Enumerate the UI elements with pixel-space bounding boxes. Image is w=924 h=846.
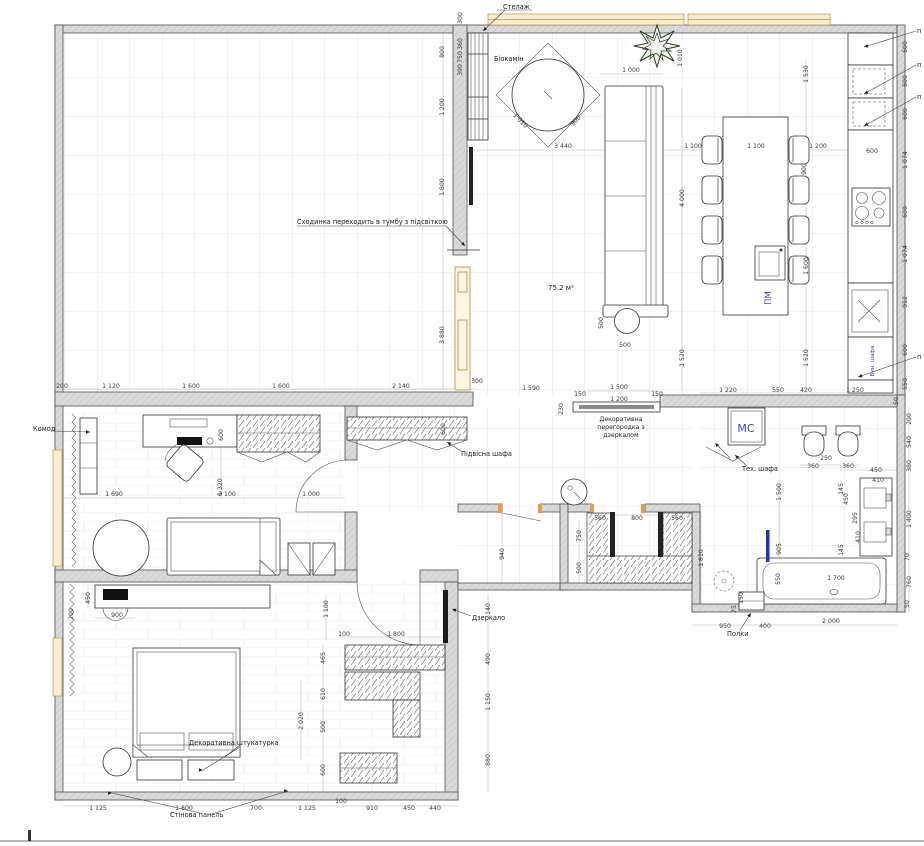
dim-label: 70	[904, 553, 911, 561]
dim-label: 100	[338, 631, 350, 638]
dim-label: 250	[820, 455, 832, 462]
label-hanging-wardrobe: Підвісна шафа	[461, 450, 512, 458]
dim-label: 1 690	[105, 491, 123, 498]
dim-label: 360	[842, 463, 854, 470]
dim-label: 910	[366, 805, 378, 812]
wall-tv	[469, 147, 473, 205]
label-dishwasher: ПМ	[764, 291, 774, 305]
dim-label: 410	[872, 477, 884, 484]
label-partition-1: Декоративна	[600, 416, 643, 423]
dim-label: 1 800	[439, 178, 446, 196]
dim-label: 600	[866, 148, 878, 155]
dim-label: 600	[902, 75, 909, 87]
dim-label: 1 500	[776, 483, 783, 501]
dim-label: 560	[594, 515, 606, 522]
dim-label: 600	[218, 429, 225, 441]
dim-label: 760	[906, 576, 913, 588]
dim-label: 900	[111, 612, 123, 619]
dim-label: 500	[320, 721, 327, 733]
label-dresser: Комод	[33, 425, 56, 433]
dim-label: 1 220	[719, 387, 737, 394]
dim-label: 600	[320, 764, 327, 776]
dim-label: 940	[499, 548, 506, 560]
dim-label: 1 150	[485, 693, 492, 711]
dim-label: 200	[68, 608, 75, 620]
dim-label: 1 500	[610, 384, 628, 391]
dim-label: 1 100	[323, 600, 330, 618]
label-cut-right: п	[917, 27, 921, 35]
dim-label: 3 440	[554, 143, 572, 150]
dim-label: 1 125	[298, 805, 316, 812]
daybed	[167, 518, 280, 575]
label-cut-right: п	[917, 353, 921, 361]
label-step-note: Сходинка переходить в тумбу з підсвіткою	[297, 218, 448, 226]
dim-label: 450	[85, 592, 92, 604]
living-room-floor	[63, 33, 453, 392]
dim-label: 1 700	[827, 575, 845, 582]
sofa	[603, 86, 668, 317]
corridor-floor	[458, 512, 560, 583]
round-rug	[93, 520, 149, 576]
dim-label: 1 520	[803, 349, 810, 367]
dim-label: 540	[906, 436, 913, 448]
dim-label: 1 320	[217, 478, 224, 496]
toilet	[802, 426, 826, 456]
dim-label: 600	[902, 108, 909, 120]
sheet-corner-mark	[28, 830, 31, 841]
dim-label: 360	[457, 38, 464, 50]
dim-label: 150	[738, 592, 745, 604]
pendant-light	[561, 479, 587, 505]
dim-label: 1 100	[747, 143, 765, 150]
floor-plan-canvas: Стелаж Біокамін Сходинка переходить в ту…	[0, 0, 924, 846]
dim-label: 440	[429, 805, 441, 812]
dim-label: 295	[852, 512, 859, 524]
dim-label: 200	[906, 413, 913, 425]
label-tech-cabinet: Тех. шафа	[741, 465, 778, 473]
dim-label: 410	[855, 531, 862, 543]
dim-label: 300	[471, 378, 483, 385]
dim-label: 465	[320, 652, 327, 664]
partition-mirror	[573, 402, 660, 412]
dim-label: 550	[775, 573, 782, 585]
dim-label: 550	[902, 378, 909, 390]
dim-label: 1 590	[522, 385, 540, 392]
dim-label: 1 100	[684, 143, 702, 150]
window	[53, 638, 62, 696]
label-washer: МС	[737, 422, 754, 435]
label-area: 75.2 м²	[548, 284, 574, 292]
bidet	[836, 426, 860, 456]
dim-label: 1 800	[387, 631, 405, 638]
dim-label: 500	[576, 562, 583, 574]
label-wall-panel: Стінова панель	[170, 811, 224, 819]
dim-label: 600	[902, 206, 909, 218]
label-biofireplace: Біокамін	[494, 55, 524, 63]
window	[53, 450, 62, 566]
dim-label: 50	[904, 600, 911, 608]
dim-label: 880	[485, 754, 492, 766]
label-wine-cabinet: Вин. шафа	[870, 346, 876, 377]
dim-label: 912	[902, 296, 909, 308]
dresser	[80, 418, 97, 494]
dim-label: 3 880	[439, 326, 446, 344]
dim-label: 390	[457, 64, 464, 76]
dim-label: 50	[893, 397, 900, 405]
dim-label: 140	[485, 603, 492, 615]
dim-label: 2 140	[392, 383, 410, 390]
dim-label: 800	[439, 46, 446, 58]
dim-label: 230	[558, 403, 565, 415]
dim-label: 1 800	[175, 805, 193, 812]
dim-label: 1 600	[272, 383, 290, 390]
label-partition-2: перегородка з	[597, 424, 644, 431]
dim-label: 500	[598, 317, 605, 329]
dim-label: 150	[574, 391, 586, 398]
dim-label: 1 125	[89, 805, 107, 812]
dim-label: 1 530	[803, 65, 810, 83]
dim-label: 600	[902, 41, 909, 53]
dim-label: 360	[807, 463, 819, 470]
dim-label: 150	[651, 391, 663, 398]
label-cut-right: п	[917, 61, 921, 69]
dim-label: 1 010	[677, 49, 684, 67]
dim-label: 1 000	[622, 67, 640, 74]
bed-bench	[137, 760, 182, 780]
dim-label: 1 200	[439, 98, 446, 116]
dim-label: 200	[56, 383, 68, 390]
dim-label: 1 250	[846, 387, 864, 394]
dim-label: 300	[457, 12, 464, 24]
dim-label: 380	[906, 460, 913, 472]
bookshelf	[468, 33, 488, 140]
dim-label: 1 120	[102, 383, 120, 390]
dim-label: 500	[619, 342, 631, 349]
dim-label: 1 600	[803, 257, 810, 275]
shower-screen	[766, 530, 770, 562]
bed-bench	[188, 760, 234, 780]
label-shelving: Стелаж	[503, 3, 530, 11]
dim-label: 1 810	[698, 549, 705, 567]
dim-label: 450	[870, 467, 882, 474]
dim-label: 450	[843, 493, 850, 505]
dim-label: 1 000	[302, 491, 320, 498]
dim-label: 490	[485, 653, 492, 665]
island-sink	[755, 246, 785, 280]
dim-label: 400	[759, 623, 771, 630]
dim-label: 145	[838, 544, 845, 556]
dim-label: 1 600	[182, 383, 200, 390]
dim-label: 1 520	[679, 349, 686, 367]
dim-label: 560	[671, 515, 683, 522]
plant	[634, 25, 680, 67]
mirror-strip	[579, 405, 654, 409]
dim-label: 420	[800, 387, 812, 394]
side-table-round	[615, 309, 640, 334]
dim-label: 1 200	[809, 143, 827, 150]
dim-label: 550	[772, 387, 784, 394]
label-partition-3: дзеркалом	[603, 432, 639, 439]
mirror-panel	[443, 590, 448, 643]
dim-label: 100	[335, 798, 347, 805]
dim-label: 800	[631, 515, 643, 522]
dim-label: 450	[403, 805, 415, 812]
dim-label: 600	[902, 344, 909, 356]
dim-label: 1 074	[902, 245, 909, 263]
dim-label: 2 020	[298, 712, 305, 730]
dim-label: 900	[801, 163, 808, 175]
dim-label: 1 074	[902, 151, 909, 169]
dim-label: 4 000	[679, 189, 686, 207]
dim-label: 750	[576, 530, 583, 542]
dim-label: 950	[719, 623, 731, 630]
dim-label: 1 200	[610, 396, 628, 403]
double-washbasin	[860, 478, 892, 556]
dim-label: 905	[776, 543, 783, 555]
dim-label: 700	[250, 805, 262, 812]
dim-label: 750	[457, 51, 464, 63]
label-plaster: Декоративна штукатурка	[189, 739, 279, 747]
label-shelves: Полки	[727, 630, 748, 638]
floor-plan-drawing: Стелаж Біокамін Сходинка переходить в ту…	[0, 0, 924, 846]
pouf	[103, 748, 131, 776]
dim-label: 610	[320, 688, 327, 700]
hob	[852, 188, 890, 226]
dim-label: 2 000	[822, 618, 840, 625]
dim-label: 1 400	[906, 510, 913, 528]
label-cut-right: п	[917, 93, 921, 101]
dim-label: 600	[440, 423, 447, 435]
dim-label: 75	[731, 605, 738, 613]
